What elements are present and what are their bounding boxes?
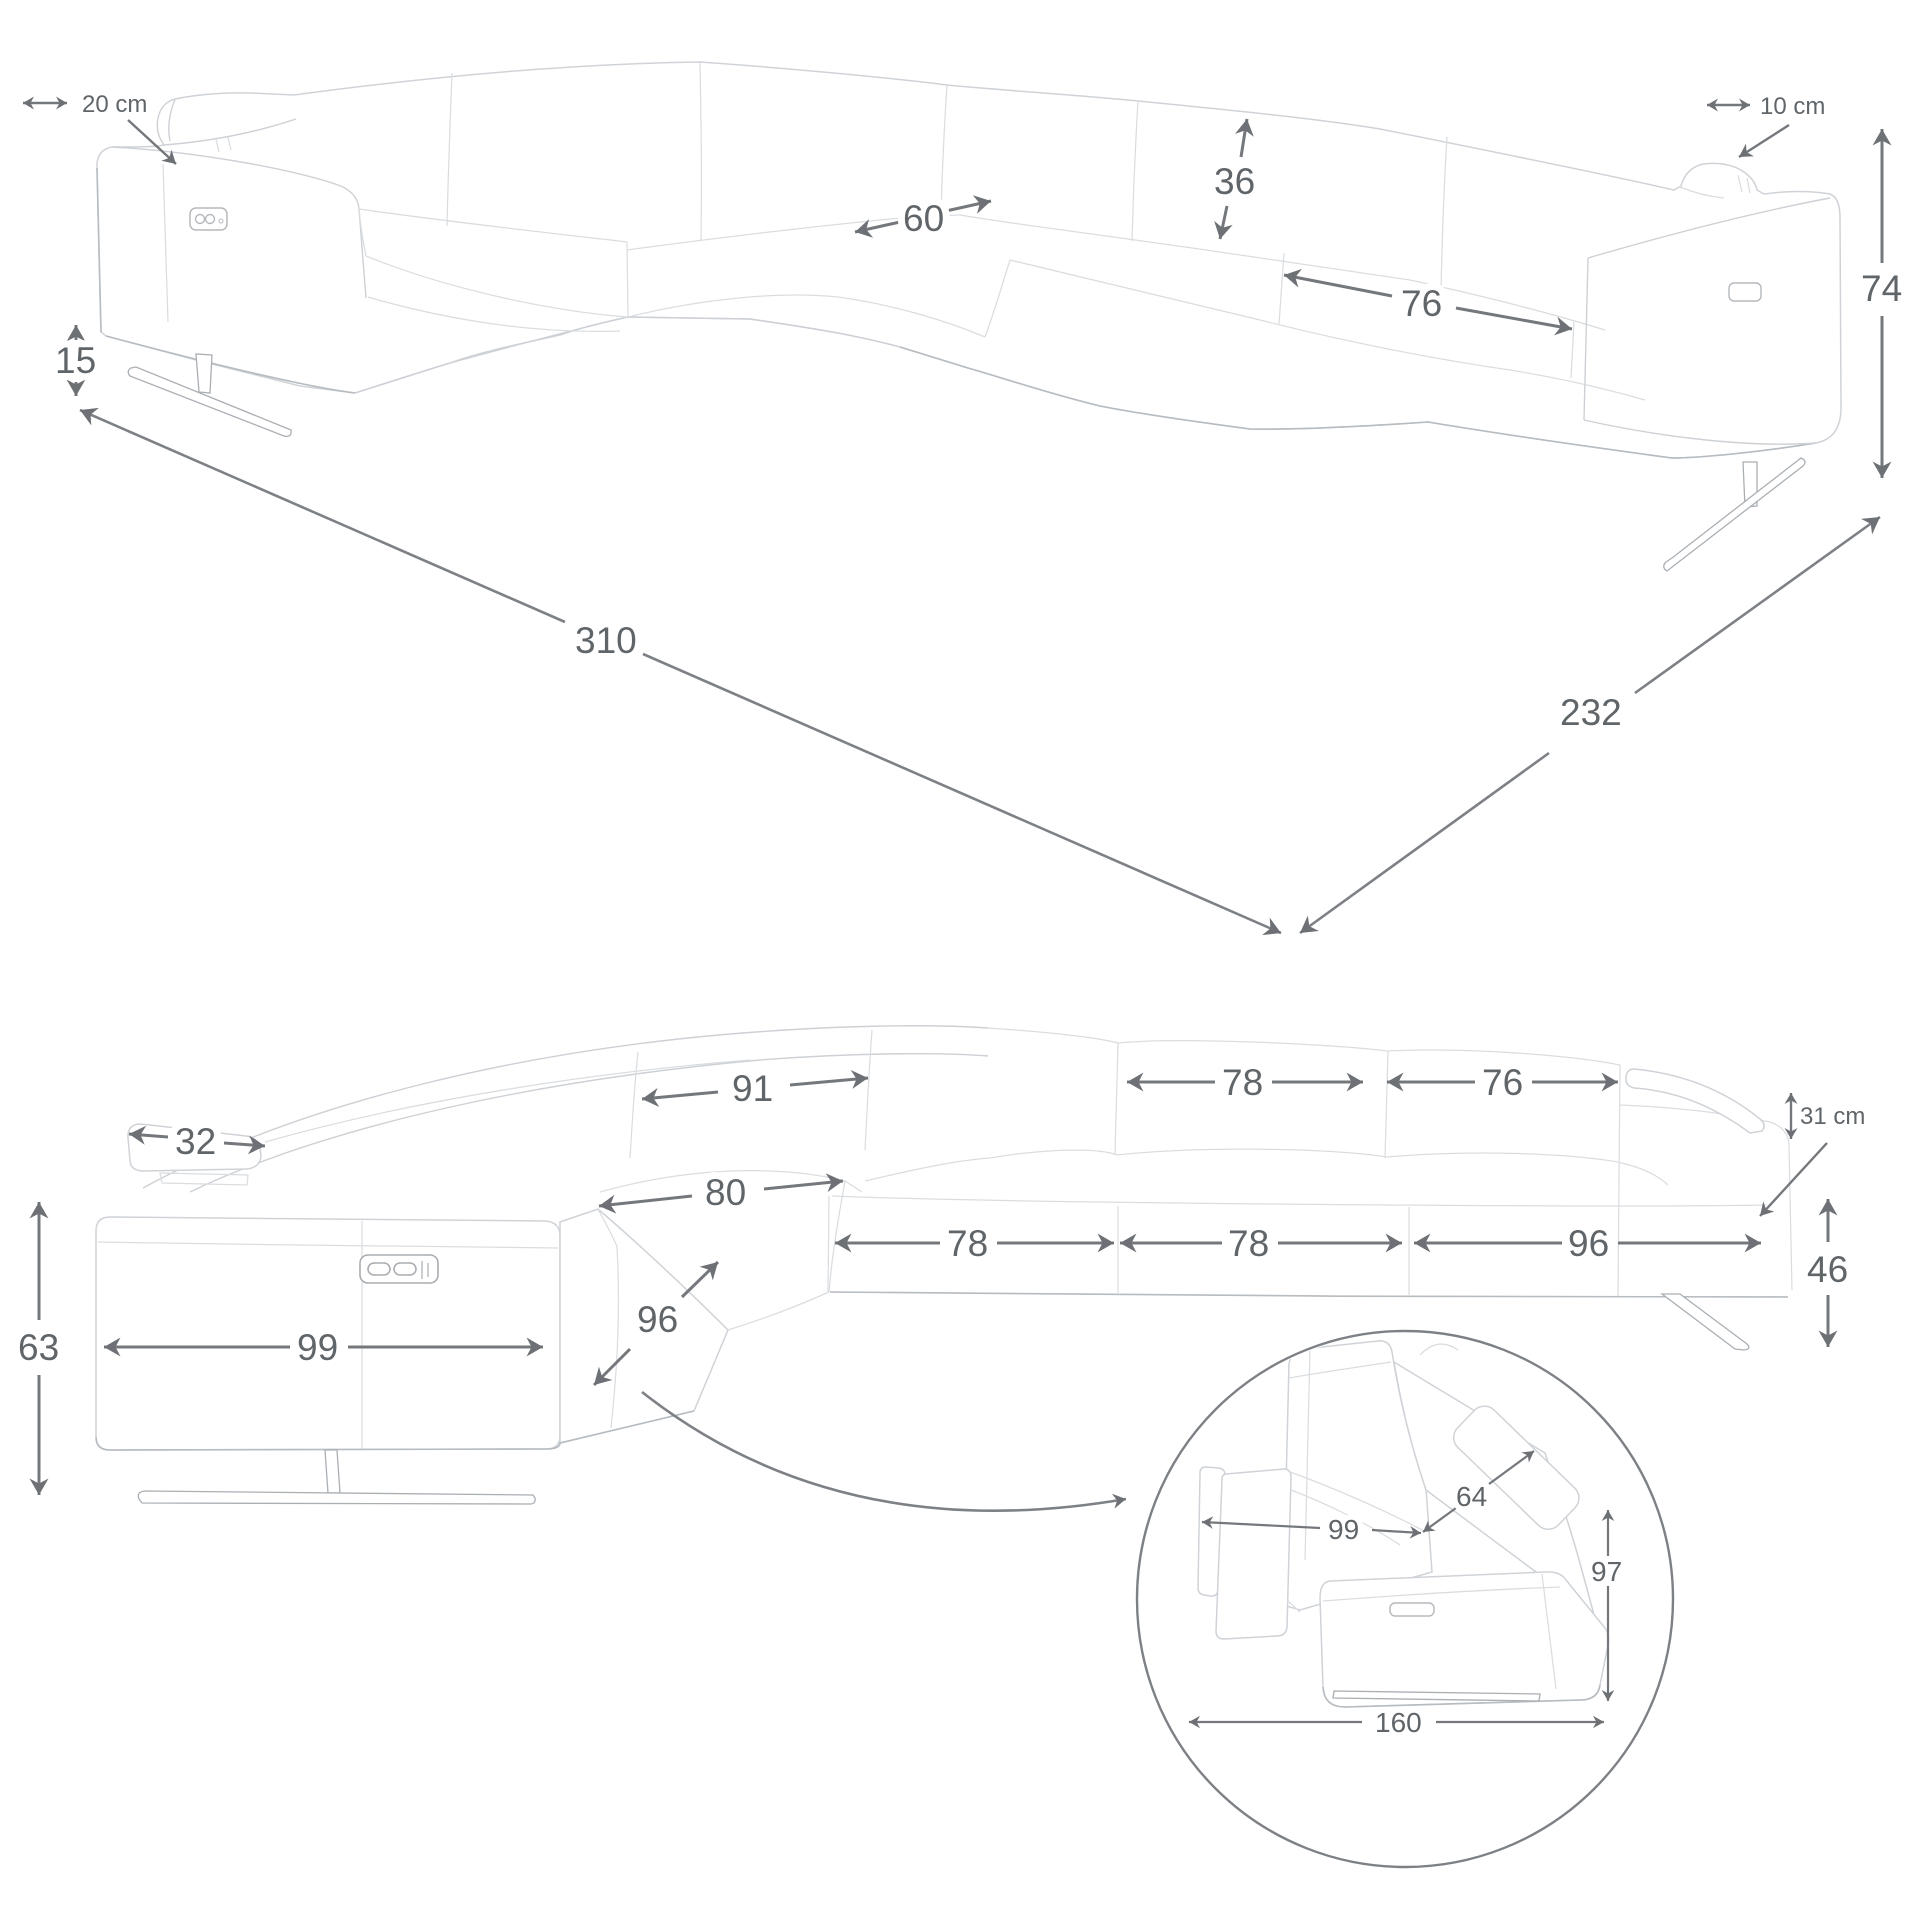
svg-text:99: 99: [1328, 1514, 1359, 1545]
svg-text:76: 76: [1401, 283, 1442, 324]
svg-text:15: 15: [55, 340, 96, 381]
svg-text:31 cm: 31 cm: [1800, 1103, 1865, 1130]
svg-text:96: 96: [637, 1299, 678, 1340]
svg-text:96: 96: [1568, 1223, 1609, 1264]
svg-text:91: 91: [732, 1068, 773, 1109]
svg-text:76: 76: [1482, 1062, 1523, 1103]
svg-text:78: 78: [1222, 1062, 1263, 1103]
svg-text:99: 99: [297, 1327, 338, 1368]
svg-text:32: 32: [175, 1121, 216, 1162]
svg-text:10 cm: 10 cm: [1760, 93, 1825, 120]
svg-text:160: 160: [1375, 1707, 1422, 1738]
svg-text:20 cm: 20 cm: [82, 91, 147, 118]
svg-text:78: 78: [1228, 1223, 1269, 1264]
svg-text:36: 36: [1214, 161, 1255, 202]
svg-text:97: 97: [1591, 1556, 1622, 1587]
svg-text:63: 63: [18, 1327, 59, 1368]
svg-text:232: 232: [1560, 692, 1622, 733]
svg-text:78: 78: [947, 1223, 988, 1264]
svg-text:80: 80: [705, 1172, 746, 1213]
svg-text:310: 310: [575, 620, 637, 661]
svg-text:74: 74: [1861, 268, 1902, 309]
svg-text:64: 64: [1456, 1481, 1487, 1512]
svg-text:60: 60: [903, 198, 944, 239]
svg-text:46: 46: [1807, 1249, 1848, 1290]
